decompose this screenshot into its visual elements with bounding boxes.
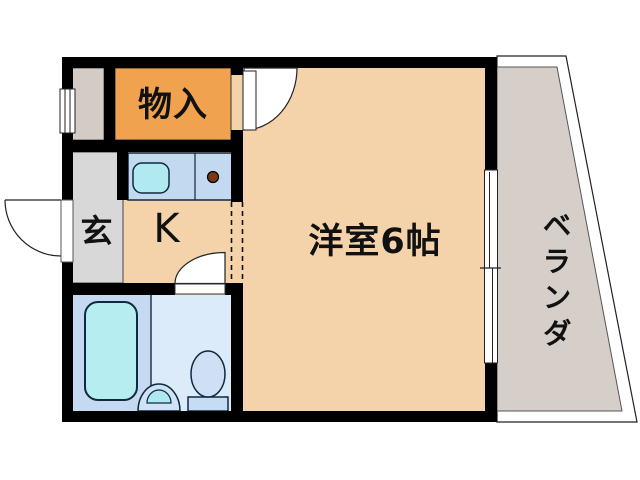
wall-top: [62, 57, 497, 68]
kitchen-sink: [133, 163, 169, 193]
bathtub: [85, 302, 137, 400]
wall-niche-storage: [104, 68, 115, 140]
toilet-tank: [188, 397, 228, 411]
wall-bathroom-top-left: [62, 283, 175, 295]
wall-right-b: [485, 363, 497, 422]
floor-plan: 物入 玄 K 洋室6帖 ベランダ: [0, 0, 640, 480]
sliding-window-left: [60, 89, 75, 133]
wall-right-a: [485, 57, 497, 170]
wall-entry-kitchen: [117, 152, 128, 200]
bathroom-door: [175, 284, 225, 294]
entry-hall: [72, 152, 123, 283]
entrance-door-arc: [5, 200, 61, 256]
storage-door: [243, 71, 256, 130]
storage-room: [115, 68, 231, 140]
wall-bottom: [62, 411, 497, 422]
veranda: [497, 67, 622, 411]
wall-left-a: [62, 57, 73, 89]
wall-storage-right-top: [231, 57, 243, 75]
wall-bathroom-top-right: [225, 283, 243, 295]
wall-storage-right: [231, 130, 243, 202]
wall-under-storage: [62, 140, 243, 152]
entrance-door: [61, 200, 73, 262]
service-niche: [72, 68, 104, 140]
floor-plan-drawing: [0, 0, 640, 480]
toilet: [191, 351, 225, 397]
wall-bathroom-right: [231, 283, 243, 422]
gas-burner-icon: [208, 172, 219, 183]
